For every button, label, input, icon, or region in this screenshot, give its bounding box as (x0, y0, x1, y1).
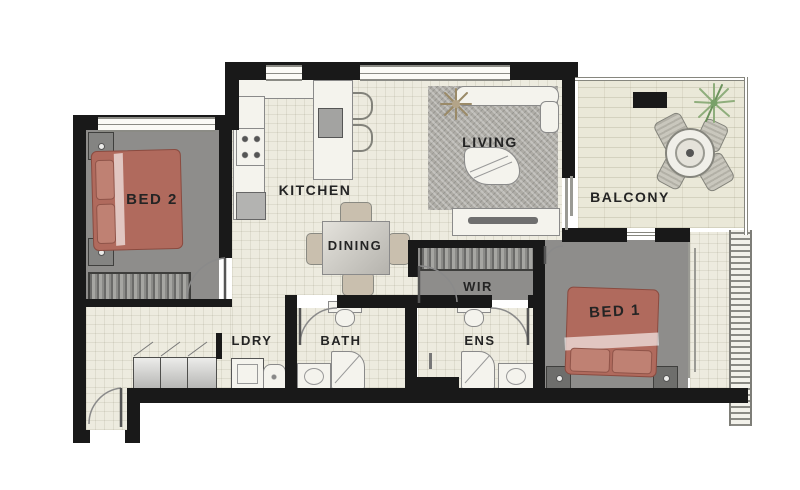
room-label-bed2: BED 2 (118, 192, 186, 207)
wall-balcony-bottom-right (655, 228, 690, 242)
balcony-bottom-rail (627, 232, 657, 236)
ens-tap (429, 353, 432, 369)
bed1-window-slider-1 (688, 242, 690, 378)
room-label-wir: WIR (448, 280, 508, 293)
ens-vanity (498, 363, 534, 390)
bed1-pillow-right (612, 349, 653, 374)
living-tv (468, 217, 538, 224)
balcony-rail-top (575, 77, 748, 81)
wall-bed2-corner (219, 299, 232, 307)
bed2-pillow-bottom (96, 204, 116, 244)
wall-wir-left (408, 240, 418, 277)
wall-ens-halfwall (415, 377, 459, 388)
room-label-balcony: BALCONY (576, 190, 684, 204)
living-balcony-slider-1 (565, 178, 568, 230)
living-coffee-table (464, 147, 520, 185)
floor-entry (86, 388, 127, 430)
bed1-nightstand-right (653, 366, 678, 390)
ens-shower (461, 351, 495, 389)
wall-bath-left (285, 295, 297, 390)
bath-shower (331, 351, 365, 389)
room-label-dining: DINING (322, 239, 388, 252)
wall-bed2-bottom (86, 299, 219, 307)
floor-plan: BED 2 KITCHEN DINING LIVING BALCONY WIR … (0, 0, 800, 490)
bed2-wardrobe (88, 272, 191, 302)
laundry-tub (263, 364, 286, 390)
room-label-ldry: LDRY (222, 334, 282, 347)
kitchen-stool-1 (353, 92, 373, 120)
wall-wir-top (408, 240, 540, 248)
wall-ens-bed1-divider (533, 240, 545, 390)
bed2-pillow-top (95, 160, 115, 200)
living-balcony-slider-2 (570, 176, 573, 216)
hall-cupboard-2 (160, 357, 190, 390)
balcony-table-center (686, 149, 694, 157)
window-bed2 (98, 117, 215, 132)
kitchen-sink (318, 108, 343, 138)
balcony-rail-right (744, 77, 748, 235)
room-label-bath: BATH (311, 334, 371, 347)
bath-basin (304, 368, 324, 385)
bed1-pillow-left (570, 348, 611, 373)
wall-bottom-main (127, 388, 748, 403)
balcony-table (665, 128, 715, 178)
hall-cupboard-1 (133, 357, 163, 390)
bed1-window-slider-2 (694, 248, 696, 372)
wall-exterior-left (73, 115, 86, 443)
hall-cupboard-3 (187, 357, 217, 390)
ens-toilet-bowl (464, 309, 484, 327)
kitchen-fridge (236, 192, 266, 220)
living-sofa-armrest (540, 101, 559, 133)
wall-living-right (562, 74, 575, 178)
ens-basin (506, 368, 526, 385)
kitchen-stove (236, 128, 265, 166)
room-label-ens: ENS (450, 334, 510, 347)
window-kitchen (266, 65, 302, 81)
bed1-bed (564, 286, 659, 377)
laundry-washer-door (237, 364, 258, 384)
laundry-washer (231, 358, 264, 390)
wall-balcony-bottom-left (562, 228, 627, 242)
dining-chair-bottom (342, 272, 374, 296)
bath-vanity (297, 363, 331, 390)
room-label-bed1: BED 1 (580, 302, 651, 321)
bath-toilet-bowl (335, 309, 355, 327)
dining-chair-right (388, 233, 410, 265)
kitchen-stool-2 (353, 124, 373, 152)
wall-bed2-right (219, 126, 232, 258)
wall-entry-left (73, 430, 90, 443)
room-label-living: LIVING (455, 135, 525, 149)
room-label-kitchen: KITCHEN (275, 183, 355, 197)
window-living (360, 65, 510, 81)
balcony-column (633, 92, 667, 108)
